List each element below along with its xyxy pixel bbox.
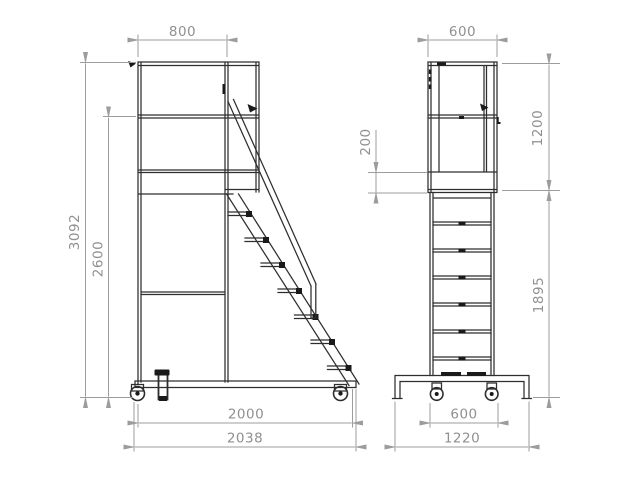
floor-lock-cap	[155, 370, 170, 376]
floor-lock-foot	[159, 396, 167, 401]
dim-label-wheel-track: 600	[450, 407, 477, 423]
hinge-mark	[437, 63, 446, 66]
dim-label-guardrail-height: 1200	[530, 110, 546, 146]
dim-label-side-top-width: 800	[169, 24, 196, 40]
dim-label-base-width: 1220	[444, 431, 480, 447]
dim-label-wheelbase: 2000	[228, 407, 264, 423]
background	[0, 0, 640, 480]
dim-label-mid-rail-height: 2600	[91, 241, 107, 277]
caster-hub	[490, 392, 494, 396]
dim-label-overall-length: 2038	[227, 431, 263, 447]
dim-label-toe-board-height: 200	[358, 128, 374, 155]
latch-mark	[223, 84, 226, 94]
platform-ladder-drawing: 800 3092 2600 2000 2038 600 200 1200 189…	[0, 0, 640, 480]
dim-label-overall-height: 3092	[67, 214, 83, 250]
caster-hub	[338, 391, 342, 395]
dim-label-front-top-width: 600	[449, 24, 476, 40]
technical-drawing-page: 800 3092 2600 2000 2038 600 200 1200 189…	[0, 0, 640, 480]
caster-hub	[135, 391, 139, 395]
dim-label-platform-height: 1895	[531, 277, 547, 313]
caster-hub	[435, 392, 439, 396]
